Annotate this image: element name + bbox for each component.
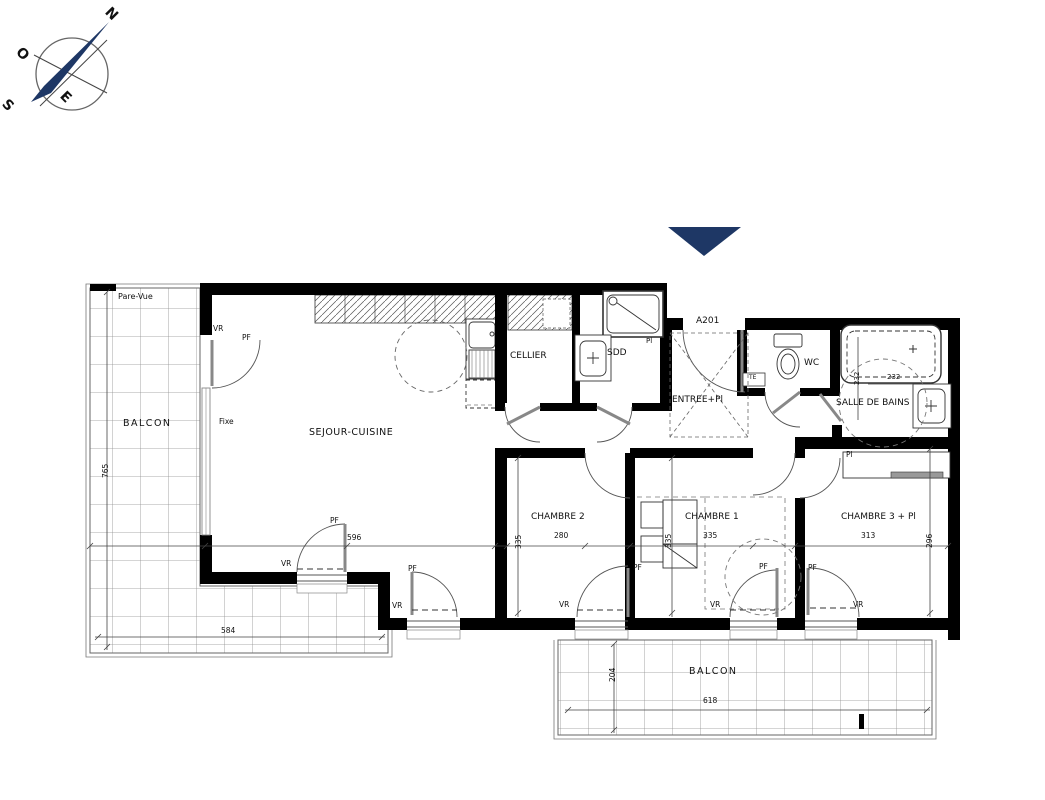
kitchen-counter <box>315 295 572 330</box>
toilet <box>774 334 802 379</box>
shower <box>603 291 663 337</box>
dining-table <box>395 320 467 392</box>
dimension-tick <box>859 714 864 729</box>
kitchen-sink <box>466 319 498 408</box>
floor-plan-canvas: NOESPare-VueBALCON765584SEJOUR-CUISINECE… <box>0 0 1045 800</box>
technical-shaft-box <box>743 373 765 386</box>
compass-needle <box>31 22 109 102</box>
closet-pl <box>843 452 950 478</box>
compass-rose-icon <box>31 22 109 110</box>
entrance-direction-marker-icon <box>668 227 741 256</box>
washbasin-sdd <box>575 335 611 381</box>
balcony-bottom <box>554 640 936 739</box>
washbasin-sdb <box>913 384 951 428</box>
turning-circle-bedroom1 <box>725 539 801 615</box>
balcony-left <box>86 284 392 657</box>
bathtub <box>841 325 941 383</box>
bedroom1-furniture <box>641 500 697 568</box>
bedroom1-dashed-zone <box>637 497 785 609</box>
floor-plan-drawing <box>0 0 1045 800</box>
entry-wardrobe <box>670 333 748 437</box>
